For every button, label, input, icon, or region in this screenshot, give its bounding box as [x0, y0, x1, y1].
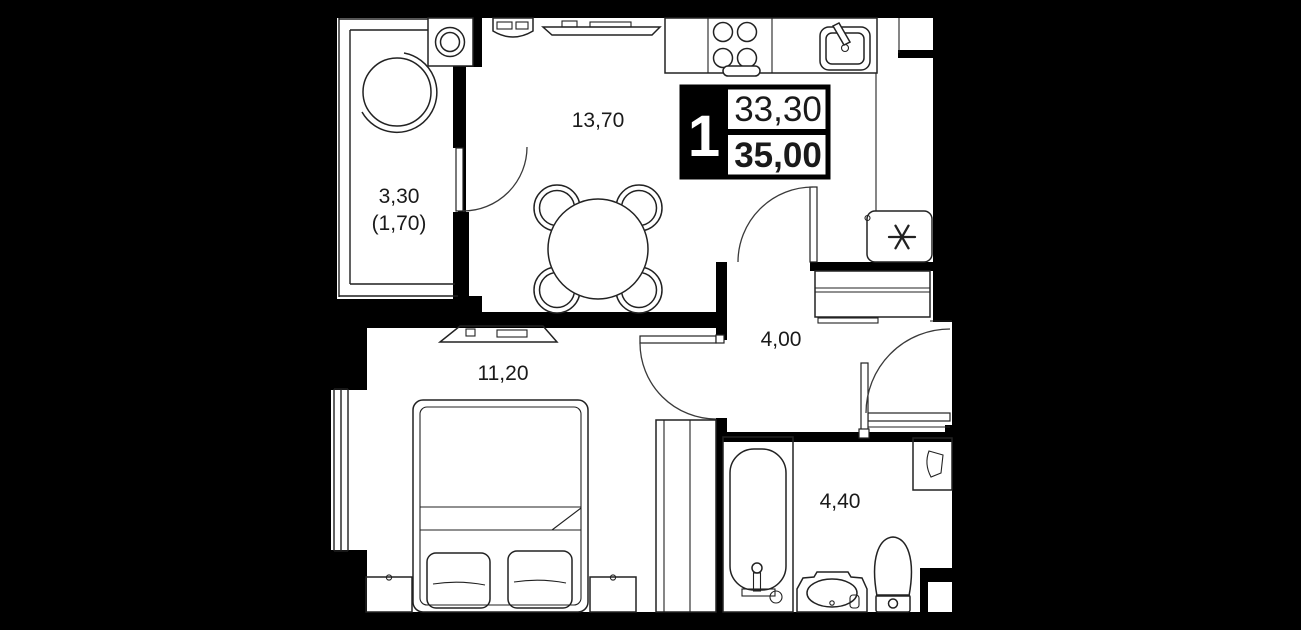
round-chair-icon [363, 58, 431, 126]
door-jamb [716, 335, 724, 343]
dining-table-icon [548, 199, 648, 299]
door-leaf [810, 187, 817, 262]
wall-under-fridge [810, 262, 933, 271]
room-bedroom [331, 312, 727, 630]
floor-plan: 13,70 3,30 (1,70) 11,20 4,00 4,40 1 33,3… [0, 0, 1301, 630]
wall-left-upper-pier [331, 328, 367, 390]
wall-right-outer [972, 0, 985, 630]
door-jamb [859, 429, 869, 438]
wall-top [331, 0, 985, 18]
wall-right-lower [952, 322, 972, 630]
label-balcony: 3,30 [379, 185, 420, 208]
wall-kitchen-hall [716, 262, 727, 340]
badge-rooms-count: 1 [688, 104, 720, 169]
label-kitchen-living: 13,70 [572, 109, 625, 132]
badge-upper-area: 33,30 [734, 90, 822, 129]
oven-handle [723, 66, 760, 76]
badge-lower-area: 35,00 [734, 136, 822, 175]
wall-bedroom-door-stub [716, 418, 727, 434]
wall-bath-left [716, 432, 723, 615]
label-hallway: 4,00 [761, 328, 802, 351]
wall-niche-bottom [898, 50, 933, 58]
wall-shelf-stub [945, 425, 952, 432]
wall-corner-stub-left [920, 568, 928, 630]
area-badge: 1 33,30 35,00 [682, 87, 828, 177]
door-leaf [456, 148, 463, 211]
wall-bottom [331, 612, 985, 630]
label-balcony-secondary: (1,70) [372, 212, 427, 235]
dining-set [534, 185, 662, 313]
wall-right-upper [933, 18, 972, 322]
wall-left-lower-pier [331, 550, 367, 615]
door-leaf [640, 336, 716, 343]
duct-niche [928, 582, 950, 612]
floor-plan-canvas: 13,70 3,30 (1,70) 11,20 4,00 4,40 1 33,3… [0, 0, 1301, 630]
label-bathroom: 4,40 [820, 490, 861, 513]
badge-divider [728, 129, 828, 135]
label-bedroom: 11,20 [478, 362, 529, 385]
door-leaf [868, 413, 950, 421]
wall-balcony-kitchen-b [453, 67, 466, 148]
